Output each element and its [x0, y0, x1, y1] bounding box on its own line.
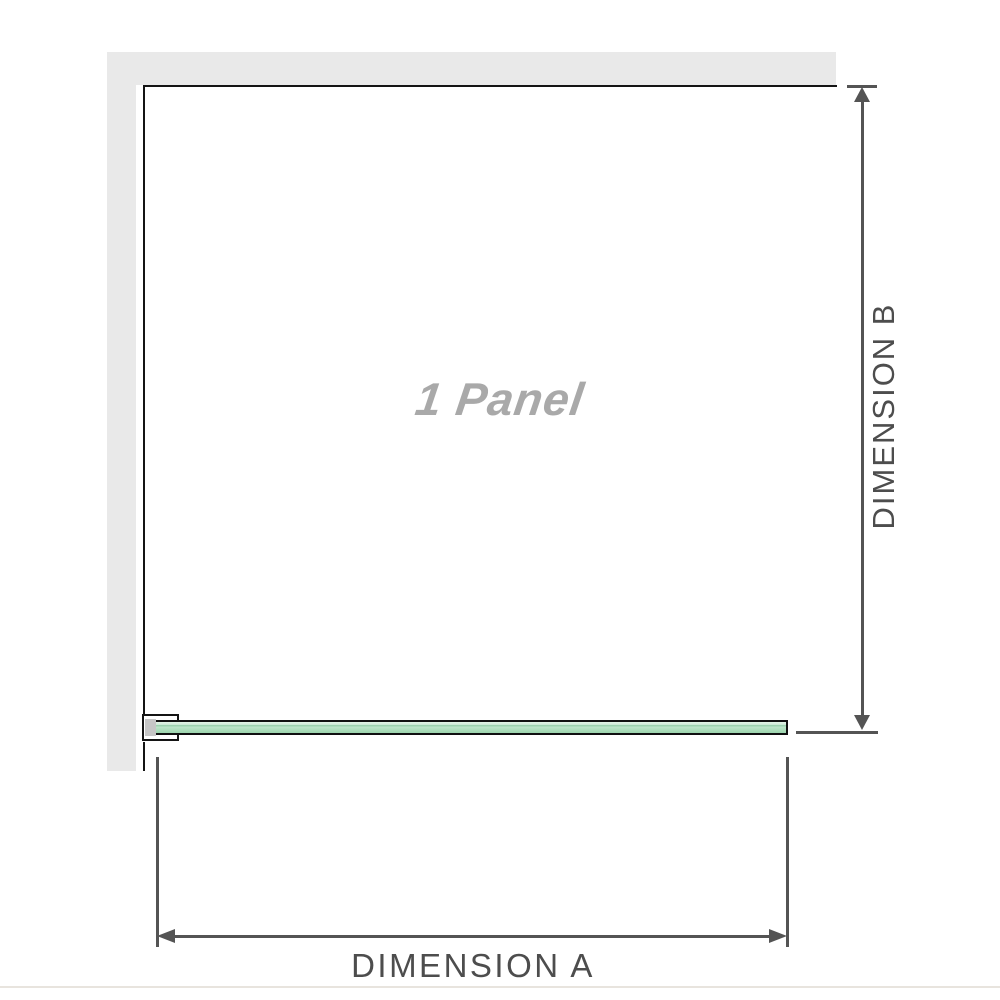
dimension-b-line [861, 100, 864, 717]
shower-panel-diagram: 1 Panel DIMENSION B DIMENSION A [0, 0, 1000, 1000]
dimension-b-label: DIMENSION B [866, 303, 902, 530]
panel-count-label: 1 Panel [412, 372, 588, 426]
dimension-b-arrow-down-icon [854, 715, 870, 730]
dimension-a-arrow-right-icon [769, 929, 787, 943]
dimension-a-label: DIMENSION A [351, 947, 595, 985]
glass-panel [156, 720, 788, 735]
wall-left-bar [107, 52, 136, 771]
wall-top-bar [107, 52, 836, 85]
dimension-a-line [162, 935, 782, 938]
dimension-a-arrow-left-icon [157, 929, 175, 943]
dimension-b-bottom-cap [796, 731, 878, 734]
image-bottom-divider [0, 986, 1000, 988]
panel-left-edge-lower-line [143, 742, 145, 771]
panel-top-edge-line [143, 85, 837, 87]
dimension-b-arrow-up-icon [854, 87, 870, 102]
panel-left-edge-line [143, 85, 145, 714]
dimension-a-right-extension-line [786, 757, 789, 947]
bracket-shadow [145, 719, 156, 736]
dimension-a-left-extension-line [156, 757, 159, 947]
